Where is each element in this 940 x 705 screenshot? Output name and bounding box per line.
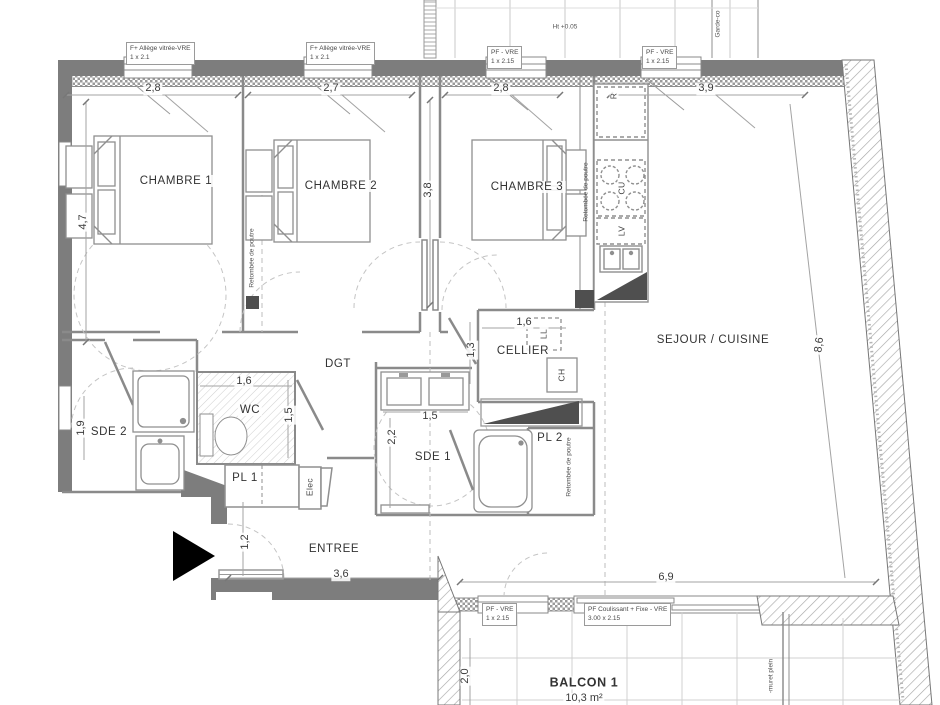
dim-cellier-1-6: 1,6: [514, 317, 533, 329]
room-label-chambre1: CHAMBRE 1: [138, 175, 215, 187]
window-tag-2-size: 1 x 2.1: [310, 53, 371, 62]
balcon1-area: 10,3 m²: [563, 693, 604, 705]
window-tag-1-size: 1 x 2.1: [130, 53, 191, 62]
fridge-label: R: [610, 91, 619, 102]
window-tag-2: F+ Allège vitrée-VRE 1 x 2.1: [306, 42, 375, 65]
beam-note-1: Retombée de poutre: [250, 226, 257, 289]
dim-cellier-1-3: 1,3: [466, 340, 478, 359]
dim-balcon-6-9: 6,9: [656, 572, 675, 584]
dim-top-2-8a: 2,8: [143, 83, 162, 95]
guardrail-note: Garde-co: [716, 8, 723, 39]
cooktop-label: CU: [618, 179, 627, 196]
room-label-chambre2: CHAMBRE 2: [303, 180, 380, 192]
floor-plan: F+ Allège vitrée-VRE 1 x 2.1 F+ Allège v…: [0, 0, 940, 705]
dim-wc-1-5: 1,5: [284, 405, 296, 424]
room-label-chambre3: CHAMBRE 3: [489, 181, 566, 193]
room-label-sde2: SDE 2: [89, 426, 129, 438]
dim-left-4-7: 4,7: [78, 212, 90, 231]
dim-wc-1-6: 1,6: [234, 376, 253, 388]
dim-sde1-1-5: 1,5: [420, 411, 439, 423]
dim-right-8-6: 8,6: [813, 335, 827, 356]
dim-top-2-7: 2,7: [321, 83, 340, 95]
window-tag-3-size: 1 x 2.15: [491, 57, 518, 66]
window-tag-1: F+ Allège vitrée-VRE 1 x 2.1: [126, 42, 195, 65]
pillars: [246, 290, 594, 309]
window-tag-3-type: PF - VRE: [491, 48, 518, 57]
window-tag-6-type: PF Coulissant + Fixe - VRE: [588, 605, 667, 614]
window-tag-2-type: F+ Allège vitrée-VRE: [310, 44, 371, 53]
beam-note-3: Retombée de poutre: [567, 435, 574, 498]
room-label-dgt: DGT: [323, 358, 353, 370]
dim-entree-3-6: 3,6: [331, 569, 350, 581]
elec-closet-label: Elec: [306, 476, 315, 498]
dim-top-2-8b: 2,8: [491, 83, 510, 95]
window-tag-4-size: 1 x 2.15: [646, 57, 673, 66]
beam-note-2: Retombée de poutre: [584, 160, 591, 223]
dim-sde1-2-2: 2,2: [387, 427, 399, 446]
muret-note: -muret plein: [769, 657, 776, 695]
room-label-balcon1: BALCON 1: [548, 676, 621, 689]
room-label-entree: ENTREE: [307, 543, 361, 555]
room-label-pl2: PL 2: [535, 432, 565, 444]
window-tag-6-size: 3.00 x 2.15: [588, 614, 667, 623]
dim-balcon-2-0: 2,0: [460, 666, 472, 685]
dim-sde2-1-9: 1,9: [76, 418, 88, 437]
entrance-arrow: [173, 531, 215, 581]
dim-mid-3-8: 3,8: [423, 180, 435, 199]
window-tag-1-type: F+ Allège vitrée-VRE: [130, 44, 191, 53]
room-label-cellier: CELLIER: [495, 345, 551, 357]
dishwasher-label: LV: [618, 224, 627, 239]
washer-label: LL: [540, 327, 549, 341]
upper-balcony: [424, 0, 758, 58]
room-label-sde1: SDE 1: [413, 451, 453, 463]
window-tag-3: PF - VRE 1 x 2.15: [487, 46, 522, 69]
window-tag-5-type: PF - VRE: [486, 605, 513, 614]
window-tag-5: PF - VRE 1 x 2.15: [482, 603, 517, 626]
window-tag-6: PF Coulissant + Fixe - VRE 3.00 x 2.15: [584, 603, 671, 626]
height-note: Ht +0.05: [551, 25, 580, 32]
boiler-label: CH: [558, 366, 567, 383]
window-tag-4: PF - VRE 1 x 2.15: [642, 46, 677, 69]
room-label-sejour-cuisine: SEJOUR / CUISINE: [655, 334, 771, 346]
cellier-fittings: [481, 318, 582, 426]
sde1-fittings: [381, 372, 532, 513]
room-label-wc: WC: [238, 404, 262, 416]
room-label-pl1: PL 1: [230, 472, 260, 484]
window-tag-4-type: PF - VRE: [646, 48, 673, 57]
dim-top-3-9: 3,9: [696, 83, 715, 95]
dim-entree-1-2: 1,2: [240, 532, 252, 551]
window-tag-5-size: 1 x 2.15: [486, 614, 513, 623]
